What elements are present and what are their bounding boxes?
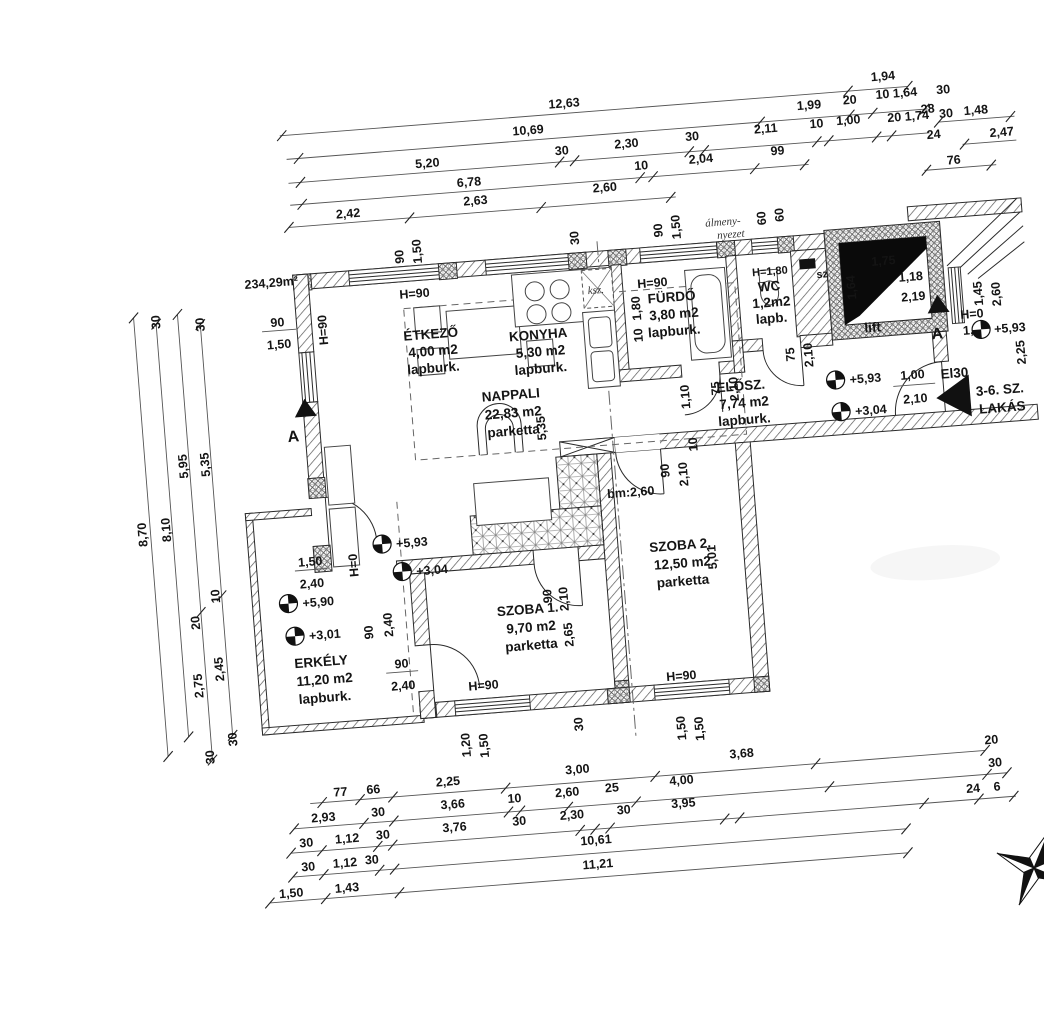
dim: 4,00 [669, 772, 694, 788]
dim: 90 [658, 463, 673, 478]
dim: 3,95 [671, 795, 696, 811]
dim: 2,45 [211, 657, 227, 682]
dim: 5,35 [197, 452, 213, 477]
dim: 2,10 [556, 586, 572, 611]
dim: 30 [685, 129, 700, 144]
dim: 30 [567, 230, 582, 245]
dim: 2,40 [381, 612, 397, 637]
dim: 8,10 [158, 517, 174, 542]
dim: 6,78 [456, 174, 481, 190]
dim: 2,10 [801, 342, 817, 367]
dim: 1,80 [628, 296, 644, 321]
dim: 10 [686, 437, 701, 452]
room-lift: lift [864, 319, 882, 335]
dim: 20 [842, 92, 857, 107]
level: +3,04 [855, 402, 888, 418]
dim: 30 [988, 755, 1003, 770]
dim: 1,20 [458, 732, 474, 757]
dim: 1,99 [796, 97, 821, 113]
dim: 1,94 [870, 68, 895, 84]
dim: 20 [984, 732, 999, 747]
lift-shaft [824, 221, 948, 340]
dim: 1,48 [963, 102, 988, 118]
dim: 1,43 [334, 880, 359, 896]
dim: 76 [946, 153, 961, 168]
level: +3,01 [309, 627, 342, 643]
window-top-wc [751, 237, 780, 254]
level: +5,93 [396, 535, 429, 551]
section-label-right: A [931, 325, 944, 343]
dim: 66 [366, 782, 381, 797]
dim: 5,95 [175, 454, 191, 479]
dim: 5,20 [415, 155, 440, 171]
dim: 1,18 [898, 269, 923, 285]
dim: 1,45 [970, 281, 986, 306]
dim: 11,21 [582, 856, 614, 872]
dim: 60 [772, 207, 787, 222]
dim: 6 [993, 779, 1001, 794]
dim: 2,30 [559, 807, 584, 823]
dim: 2,25 [1013, 340, 1029, 365]
sofa [324, 445, 354, 505]
dim: 1,50 [266, 337, 291, 353]
dim: 90 [392, 249, 407, 264]
dim: 2,30 [614, 136, 639, 152]
dim: 1,50 [674, 715, 690, 740]
dim: 2,60 [592, 180, 617, 196]
h90: H=90 [468, 677, 499, 693]
dim: 10 [208, 589, 223, 604]
kitchen-sink [583, 310, 621, 388]
dim: 2,75 [191, 673, 207, 698]
dim: 10 [631, 328, 646, 343]
dim: 5,35 [534, 415, 550, 440]
h90: H=90 [666, 668, 697, 684]
dim: 1,50 [298, 554, 323, 570]
dim: 2,10 [903, 391, 928, 407]
dim: 30 [299, 835, 314, 850]
dim: 90 [540, 589, 555, 604]
dim: 1,50 [279, 885, 304, 901]
dim: 30 [571, 717, 586, 732]
dim: 3,00 [565, 762, 590, 778]
dim: 30 [225, 732, 240, 747]
dim: 3,68 [729, 746, 754, 762]
dim: 3,76 [442, 819, 467, 835]
dim: 1,00 [900, 367, 925, 383]
level: +3,04 [416, 562, 449, 578]
dim: 30 [371, 805, 386, 820]
section-label-left: A [287, 428, 300, 446]
window-left [299, 352, 318, 403]
dim: 25 [604, 780, 619, 795]
dim: 1,12 [334, 831, 359, 847]
dim: 2,19 [901, 289, 926, 305]
coffee-table [474, 478, 552, 526]
level: +5,90 [302, 594, 335, 610]
dim: 24 [966, 781, 981, 796]
level: +5,93 [994, 320, 1027, 336]
dim: 90 [394, 656, 409, 671]
dim: 2,93 [311, 810, 336, 826]
dim: 90 [361, 625, 376, 640]
h90: H=90 [399, 286, 430, 302]
dim: 1,64 [843, 275, 859, 300]
h90: H=90 [637, 275, 668, 291]
dim: 1,12 [332, 855, 357, 871]
dim: 90 [270, 315, 285, 330]
dim: 30 [301, 859, 316, 874]
dim: 60 [754, 211, 769, 226]
dim: 3,66 [440, 796, 465, 812]
dim: 10 [809, 116, 824, 131]
h0: H=0 [960, 306, 984, 322]
dim: 1,50 [668, 214, 684, 239]
dim: 2,10 [726, 376, 742, 401]
h90: H=90 [315, 314, 331, 345]
dim: 2,60 [554, 784, 579, 800]
dim: 1,10 [678, 384, 694, 409]
dim: 1,50 [476, 733, 492, 758]
dim: 8,70 [135, 522, 151, 547]
room-wc-area: 1,2m2 [752, 293, 791, 311]
dim: 2,63 [463, 193, 488, 209]
note-ceiling: nyezet [717, 228, 746, 242]
dim: 2,25 [435, 774, 460, 790]
dim: 5,01 [704, 545, 720, 570]
dim: 2,11 [753, 121, 778, 137]
dim: 30 [939, 106, 954, 121]
shaft-label: sz [816, 268, 829, 281]
dim: 20 [188, 615, 203, 630]
dim: 75 [708, 381, 723, 396]
dim: 75 [783, 347, 798, 362]
shaft-box [799, 258, 816, 269]
dim: 1,50 [692, 716, 708, 741]
dim: 2,04 [688, 151, 713, 167]
dim: 2,65 [561, 622, 577, 647]
dim: 30 [203, 750, 218, 765]
dim: 10,69 [512, 122, 544, 138]
level: +5,93 [849, 370, 882, 386]
dim: 24 [926, 127, 941, 142]
dim: 30 [193, 317, 208, 332]
room-wc: WC [757, 278, 781, 295]
dim: 99 [770, 143, 785, 158]
dim: 10 [634, 158, 649, 173]
dim: 2,40 [391, 678, 416, 694]
dim: 1,50 [409, 239, 425, 264]
flue-label: ksz. [587, 284, 604, 297]
room-wc-floor: lapb. [755, 310, 788, 327]
dim: 30 [512, 814, 527, 829]
dim: 77 [333, 785, 348, 800]
dim: 2,10 [676, 461, 692, 486]
dim: 2,40 [299, 576, 324, 592]
dim: 30 [364, 852, 379, 867]
dim: 30 [375, 827, 390, 842]
dim: 2,42 [335, 206, 360, 222]
floor-plan-drawing: 12,63 1,94 10,69 1,99 20 10 1,64 30 28 5… [0, 0, 1044, 1024]
dim: 30 [554, 143, 569, 158]
dim: 1,75 [871, 253, 896, 269]
dim: 2,60 [988, 281, 1004, 306]
h0: H=0 [346, 553, 362, 577]
dim: 10,61 [580, 832, 612, 848]
dim: 30 [148, 315, 163, 330]
dim: 10 [507, 791, 522, 806]
dim: 2,47 [989, 124, 1014, 140]
dim: 1,00 [836, 112, 861, 128]
dim: 90 [651, 223, 666, 238]
dim: 30 [936, 82, 951, 97]
dim: 30 [616, 802, 631, 817]
dim: 12,63 [548, 95, 580, 111]
